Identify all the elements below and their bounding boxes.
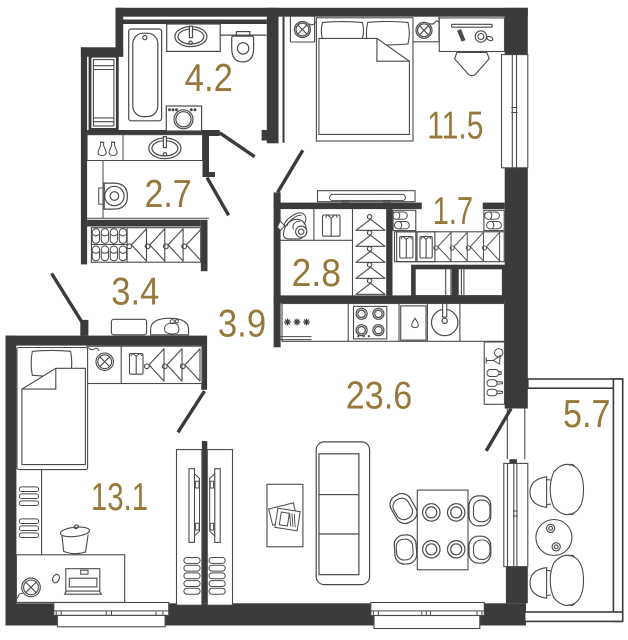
svg-text:13.1: 13.1 (91, 476, 148, 519)
svg-text:3.4: 3.4 (111, 270, 159, 313)
svg-text:23.6: 23.6 (346, 373, 412, 417)
svg-text:4.2: 4.2 (185, 56, 233, 99)
svg-text:5.7: 5.7 (563, 392, 610, 436)
svg-text:3.9: 3.9 (218, 302, 266, 345)
svg-text:2.7: 2.7 (145, 172, 192, 216)
svg-text:11.5: 11.5 (427, 104, 483, 148)
svg-text:1.7: 1.7 (433, 190, 473, 233)
svg-text:2.8: 2.8 (292, 250, 341, 294)
